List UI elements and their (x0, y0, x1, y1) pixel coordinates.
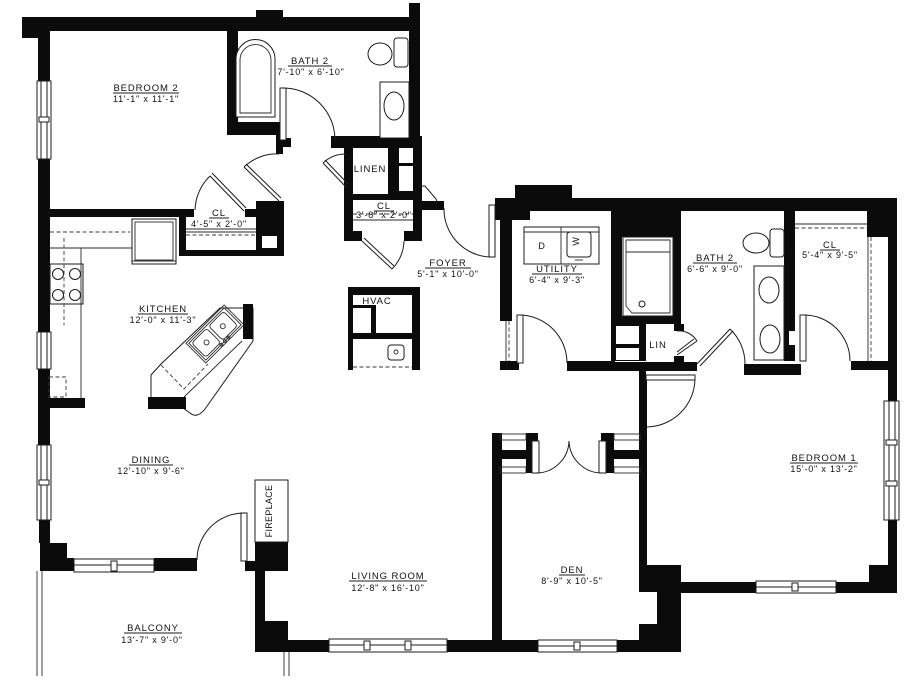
svg-text:BATH 2: BATH 2 (291, 56, 329, 67)
svg-text:DINING: DINING (132, 455, 171, 466)
svg-text:HVAC: HVAC (362, 296, 391, 307)
svg-text:UTILITY: UTILITY (536, 264, 578, 275)
svg-text:FOYER: FOYER (429, 258, 466, 269)
svg-text:LIN: LIN (649, 340, 666, 351)
svg-text:12'-8" x 16'-10": 12'-8" x 16'-10" (351, 583, 424, 593)
svg-text:4'-5" x 2'-0": 4'-5" x 2'-0" (191, 219, 247, 229)
svg-text:11'-1" x 11'-1": 11'-1" x 11'-1" (113, 94, 179, 104)
svg-text:BEDROOM 2: BEDROOM 2 (113, 83, 178, 94)
svg-text:6'-6" x 9'-0": 6'-6" x 9'-0" (687, 264, 743, 274)
svg-text:BATH 2: BATH 2 (696, 253, 734, 264)
svg-text:BEDROOM 1: BEDROOM 1 (791, 453, 856, 464)
svg-text:13'-7" x 9'-0": 13'-7" x 9'-0" (121, 635, 183, 645)
svg-text:8'-9" x 10'-5": 8'-9" x 10'-5" (541, 576, 603, 586)
svg-text:LINEN: LINEN (354, 164, 386, 175)
svg-text:6'-4" x 9'-3": 6'-4" x 9'-3" (529, 275, 585, 285)
svg-text:CL: CL (212, 208, 226, 219)
svg-text:D: D (538, 241, 545, 251)
svg-text:5'-1" x 10'-0": 5'-1" x 10'-0" (417, 269, 479, 279)
svg-text:LIVING ROOM: LIVING ROOM (351, 571, 424, 582)
svg-text:W: W (571, 236, 581, 245)
svg-text:BALCONY: BALCONY (127, 623, 179, 634)
svg-text:15'-0" x 13'-2": 15'-0" x 13'-2" (790, 464, 857, 474)
svg-text:7'-10" x 6'-10": 7'-10" x 6'-10" (277, 67, 344, 77)
svg-text:12'-0" x 11'-3": 12'-0" x 11'-3" (130, 315, 197, 325)
svg-text:FIREPLACE: FIREPLACE (264, 485, 274, 538)
svg-text:5'-4" x 9'-5": 5'-4" x 9'-5" (802, 250, 858, 260)
svg-text:KITCHEN: KITCHEN (139, 304, 187, 315)
svg-text:DEN: DEN (561, 565, 584, 576)
svg-text:12'-10" x 9'-6": 12'-10" x 9'-6" (117, 466, 184, 476)
svg-text:3'-8" x 2'-0": 3'-8" x 2'-0" (356, 210, 412, 220)
